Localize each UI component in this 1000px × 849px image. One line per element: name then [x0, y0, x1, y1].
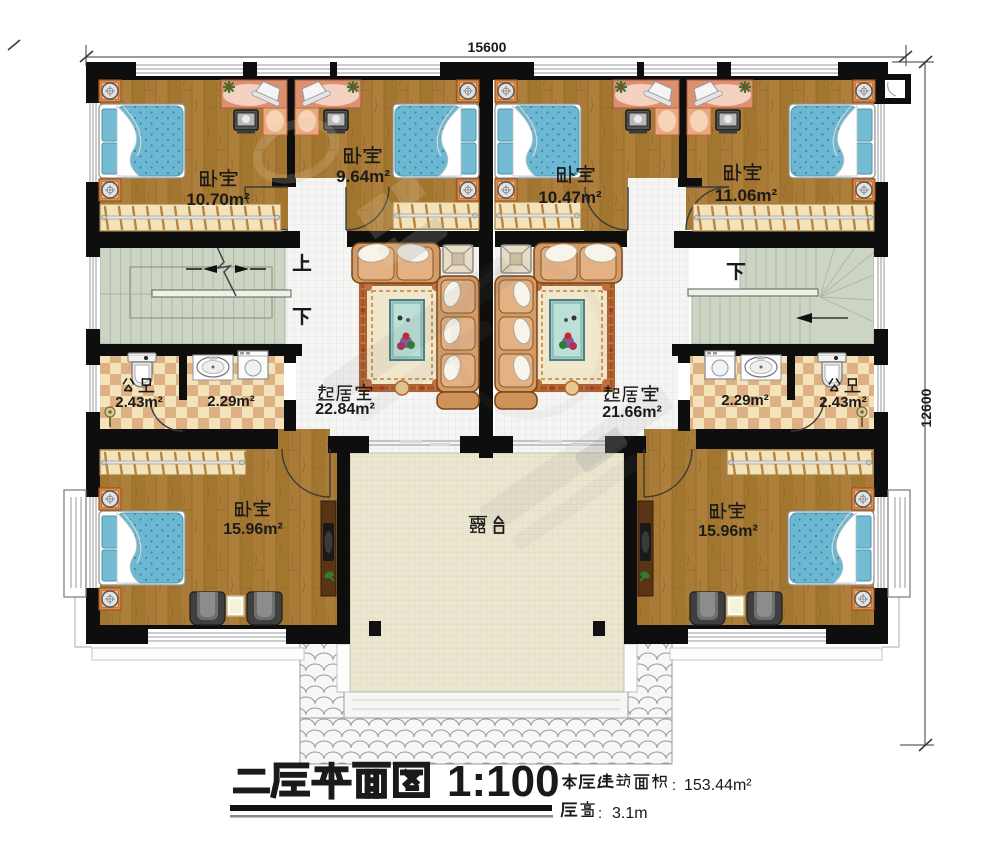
svg-text::: :	[672, 777, 676, 794]
svg-text:153.44m²: 153.44m²	[684, 777, 752, 794]
svg-text:1:100: 1:100	[447, 757, 560, 806]
svg-text:2.43m²: 2.43m²	[115, 394, 163, 411]
svg-text:15.96m²: 15.96m²	[698, 523, 758, 540]
svg-text:21.66m²: 21.66m²	[602, 404, 662, 421]
svg-text::: :	[598, 805, 602, 822]
svg-text:2.43m²: 2.43m²	[819, 394, 867, 411]
svg-text:11.06m²: 11.06m²	[715, 186, 778, 205]
svg-text:9.64m²: 9.64m²	[336, 167, 390, 186]
svg-text:15600: 15600	[468, 39, 507, 55]
svg-text:15.96m²: 15.96m²	[223, 521, 283, 538]
svg-text:3.1m: 3.1m	[612, 805, 648, 822]
svg-text:12600: 12600	[918, 388, 934, 427]
svg-text:2.29m²: 2.29m²	[207, 393, 255, 410]
svg-text:10.70m²: 10.70m²	[186, 190, 250, 209]
svg-text:10.47m²: 10.47m²	[538, 188, 602, 207]
svg-text:22.84m²: 22.84m²	[315, 401, 375, 418]
svg-text:2.29m²: 2.29m²	[721, 392, 769, 409]
